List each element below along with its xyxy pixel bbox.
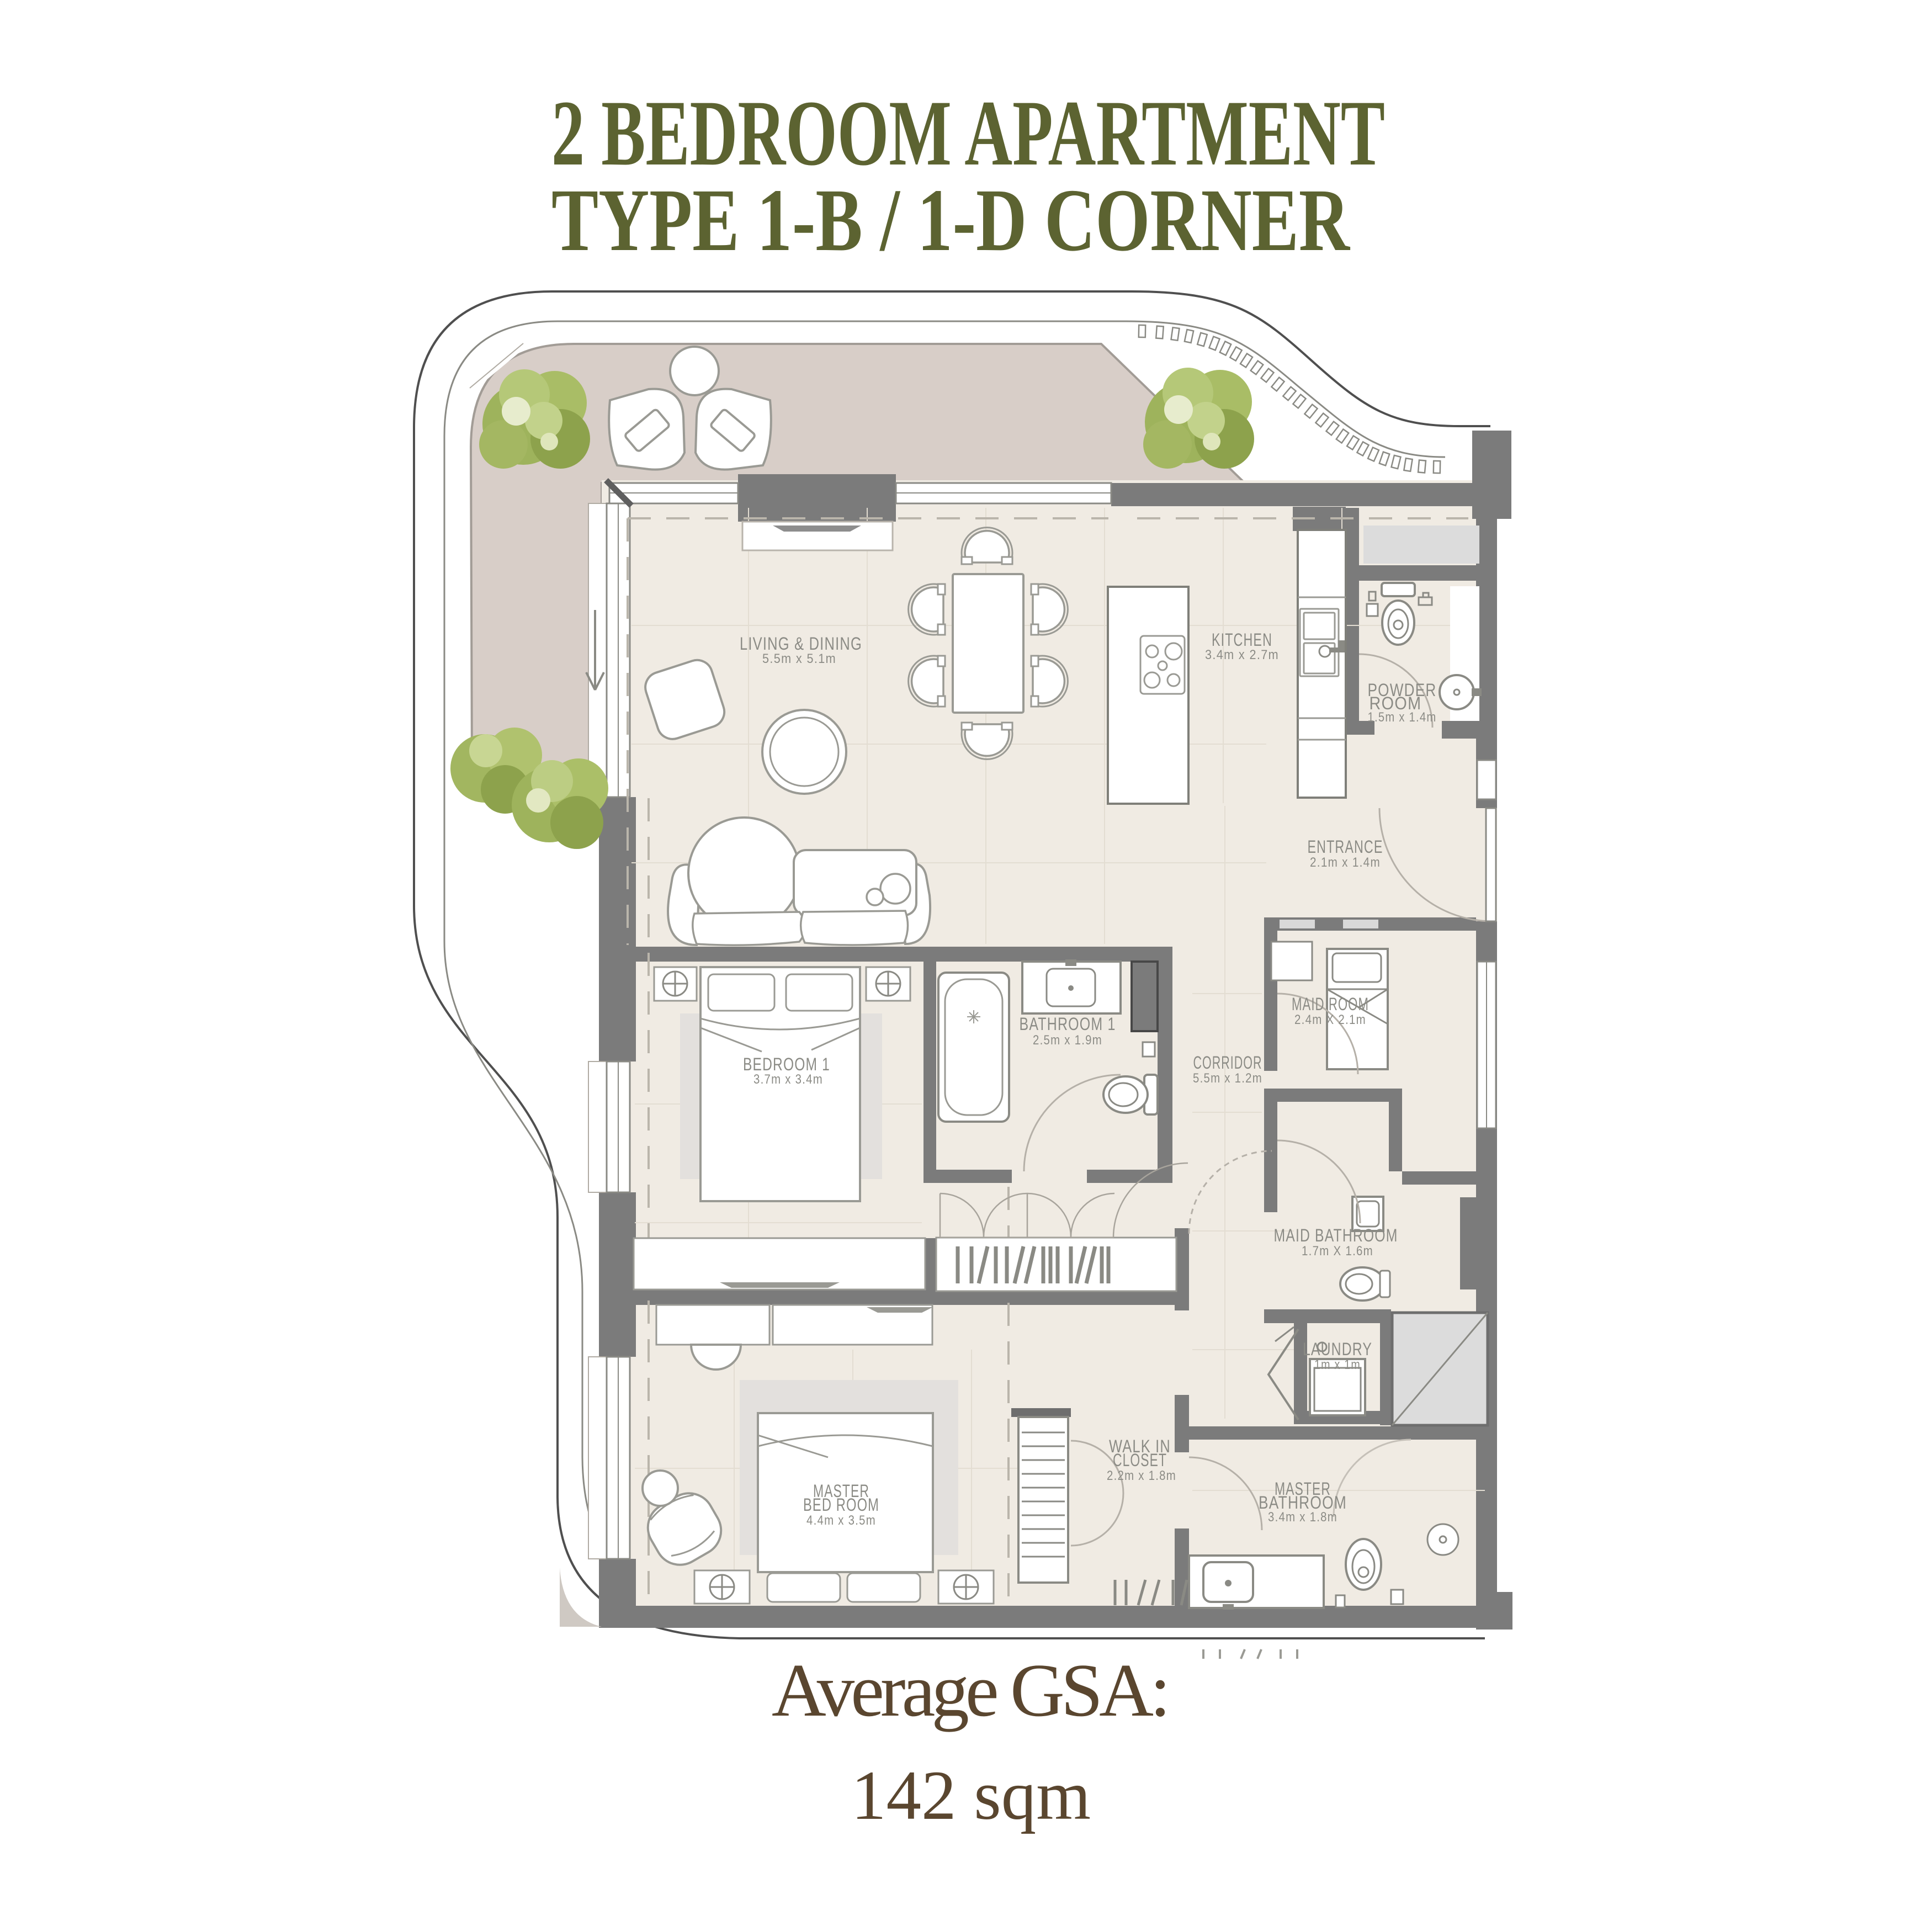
svg-text:1m x 1m: 1m x 1m <box>1314 1357 1361 1372</box>
svg-text:5.5m x 5.1m: 5.5m x 5.1m <box>762 651 836 666</box>
svg-text:4.4m x 3.5m: 4.4m x 3.5m <box>806 1513 876 1528</box>
svg-text:2.1m x 1.4m: 2.1m x 1.4m <box>1310 855 1381 870</box>
svg-text:KITCHEN: KITCHEN <box>1212 630 1272 650</box>
svg-text:142 sqm: 142 sqm <box>851 1757 1091 1834</box>
svg-text:BED ROOM: BED ROOM <box>803 1495 879 1515</box>
svg-text:2.2m x 1.8m: 2.2m x 1.8m <box>1107 1468 1176 1483</box>
svg-text:1.5m x 1.4m: 1.5m x 1.4m <box>1368 710 1437 725</box>
svg-text:BATHROOM 1: BATHROOM 1 <box>1020 1014 1116 1034</box>
svg-text:ENTRANCE: ENTRANCE <box>1308 837 1383 857</box>
svg-text:Average GSA:: Average GSA: <box>772 1648 1167 1732</box>
svg-text:MAID ROOM: MAID ROOM <box>1292 994 1369 1014</box>
svg-text:3.7m x 3.4m: 3.7m x 3.4m <box>753 1072 823 1087</box>
svg-text:CORRIDOR: CORRIDOR <box>1193 1053 1262 1073</box>
svg-text:2.4m X 2.1m: 2.4m X 2.1m <box>1294 1012 1366 1027</box>
svg-text:3.4m x 1.8m: 3.4m x 1.8m <box>1268 1510 1337 1525</box>
svg-text:2.5m x 1.9m: 2.5m x 1.9m <box>1033 1033 1102 1048</box>
svg-text:2 BEDROOM APARTMENT: 2 BEDROOM APARTMENT <box>551 81 1385 185</box>
svg-text:BEDROOM 1: BEDROOM 1 <box>743 1054 830 1074</box>
svg-text:LIVING & DINING: LIVING & DINING <box>740 634 862 654</box>
svg-text:TYPE 1-B / 1-D CORNER: TYPE 1-B / 1-D CORNER <box>551 171 1351 270</box>
svg-text:MAID BATHROOM: MAID BATHROOM <box>1274 1225 1398 1245</box>
svg-text:3.4m x 2.7m: 3.4m x 2.7m <box>1205 647 1279 662</box>
svg-text:CLOSET: CLOSET <box>1113 1450 1167 1470</box>
svg-text:1.7m X 1.6m: 1.7m X 1.6m <box>1302 1244 1373 1259</box>
svg-text:5.5m x 1.2m: 5.5m x 1.2m <box>1193 1071 1262 1086</box>
svg-text:LAUNDRY: LAUNDRY <box>1303 1339 1372 1359</box>
